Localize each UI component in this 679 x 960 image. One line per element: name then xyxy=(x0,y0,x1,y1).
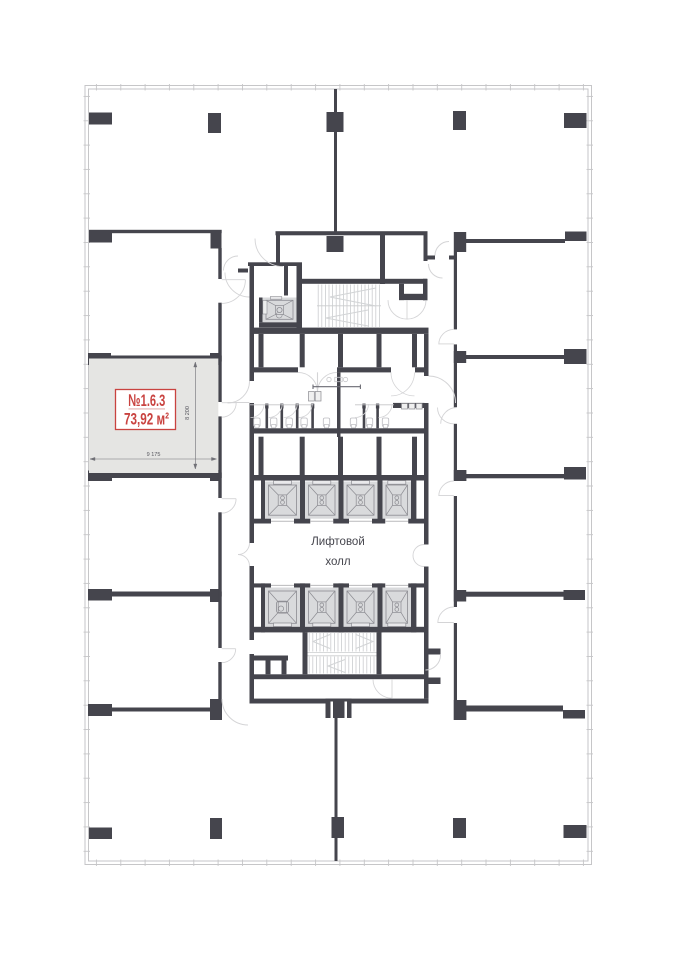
svg-text:73,92 м²: 73,92 м² xyxy=(124,410,169,429)
svg-text:Лифтовой: Лифтовой xyxy=(311,536,365,548)
svg-text:холл: холл xyxy=(325,556,350,568)
svg-text:№1.6.3: №1.6.3 xyxy=(128,391,165,410)
svg-text:9 175: 9 175 xyxy=(147,452,161,458)
svg-text:8 200: 8 200 xyxy=(185,406,191,420)
